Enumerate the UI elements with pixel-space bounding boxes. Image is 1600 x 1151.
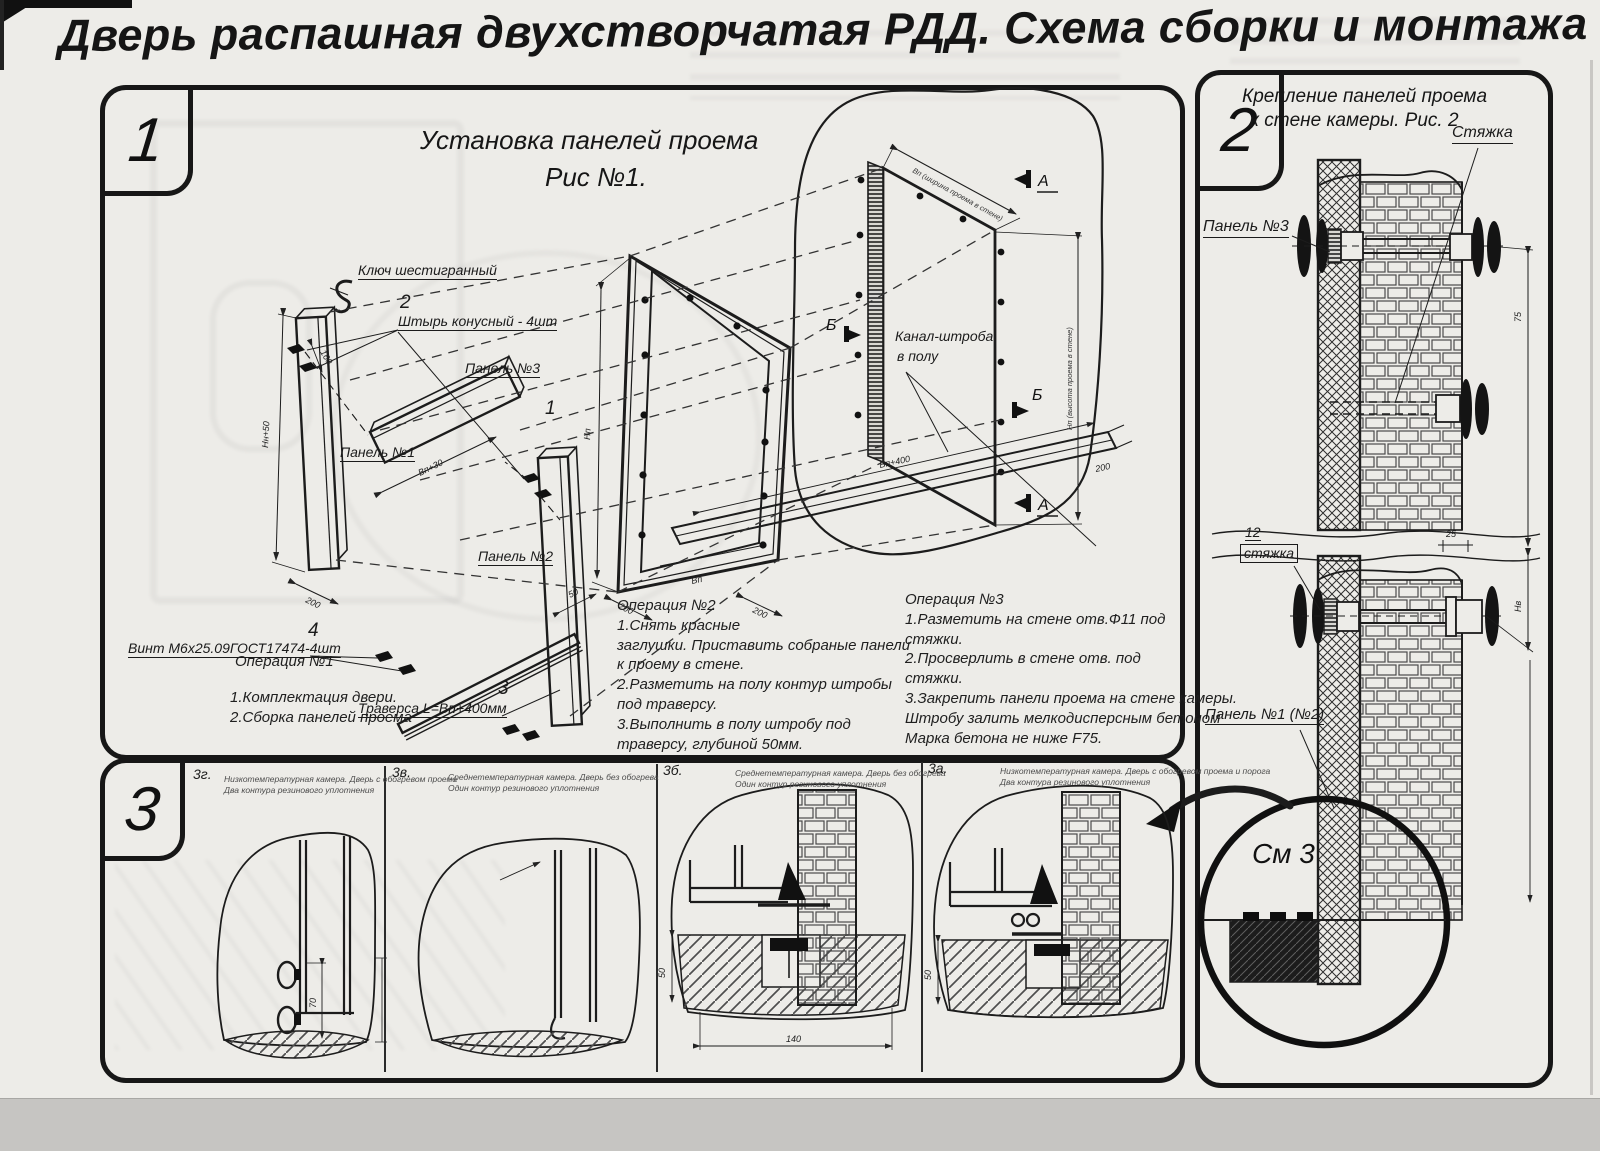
scan-artifact-left-edge <box>0 0 4 70</box>
detail-3a-caption: Низкотемпературная камера. Дверь с обогр… <box>1000 766 1270 788</box>
drawing-sheet: Дверь распашная двухстворчатая РДД. Схем… <box>0 0 1600 1151</box>
operation3-line: Штробу залить мелкодисперсным бетоном <box>905 709 1237 729</box>
channel-label-line2: в полу <box>897 348 938 364</box>
operation1-title: Операция №1 <box>235 652 334 672</box>
caption-line: Один контур резинового уплотнения <box>448 783 659 794</box>
channel-label-line1: Канал-штроба <box>895 328 993 344</box>
section3-divider <box>921 762 923 1072</box>
tie-small-label: стяжка <box>1240 544 1298 563</box>
caption-line: Два контура резинового уплотнения <box>1000 777 1270 788</box>
section1-badge-cell: 1 <box>104 89 193 196</box>
detail-3g-caption: Низкотемпературная камера. Дверь с обогр… <box>224 774 457 796</box>
operation2-line: 2.Разметить на полу контур штробы <box>617 675 910 695</box>
scan-bottom-band <box>0 1098 1600 1151</box>
caption-line: Один контур резинового уплотнения <box>735 779 946 790</box>
scan-page-edge <box>1590 60 1593 1095</box>
caption-line: Два контура резинового уплотнения <box>224 785 457 796</box>
sheet-title: Дверь распашная двухстворчатая РДД. Схем… <box>58 0 1578 62</box>
detail-3v-label: 3в. <box>392 764 411 780</box>
operation2-line: 3.Выполнить в полу штробу под <box>617 715 910 735</box>
section3-badge-cell: 3 <box>104 762 185 861</box>
operation3-text: Операция №3 1.Разметить на стене отв.Ф11… <box>905 590 1237 748</box>
detail-3b-caption: Среднетемпературная камера. Дверь без об… <box>735 768 946 790</box>
operation3-line: Марка бетона не ниже F75. <box>905 729 1237 749</box>
caption-line: Низкотемпературная камера. Дверь с обогр… <box>224 774 457 785</box>
tie-callout-number: 12 <box>1245 524 1261 541</box>
scan-artifact-corner <box>0 0 38 24</box>
operation2-title: Операция №2 <box>617 596 910 616</box>
item1-callout-number: 1 <box>545 398 556 420</box>
operation2-text: Операция №2 1.Снять красные заглушки. Пр… <box>617 596 910 754</box>
operation3-title: Операция №3 <box>905 590 1237 610</box>
operation2-line: под траверсу. <box>617 695 910 715</box>
operation1-line: 1.Комплектация двери. <box>230 688 412 708</box>
section3-frame: 3 <box>100 758 1185 1083</box>
detail-3b-label: 3б. <box>663 762 683 778</box>
caption-line: Низкотемпературная камера. Дверь с обогр… <box>1000 766 1270 777</box>
traverse-callout-number: 3 <box>498 678 509 700</box>
operation3-line: стяжки. <box>905 630 1237 650</box>
section3-badge: 3 <box>121 774 163 845</box>
section3-divider <box>656 764 658 1072</box>
operation2-line: 1.Снять красные <box>617 616 910 636</box>
operation2-line: к проему в стене. <box>617 655 910 675</box>
tie-label: Стяжка <box>1452 124 1513 144</box>
screw-callout-number: 4 <box>308 620 319 642</box>
panel1-label: Панель №1 <box>340 444 415 462</box>
panel3-label: Панель №3 <box>465 360 540 378</box>
pin-label: Штырь конусный - 4шт <box>398 313 557 331</box>
panel12-label: Панель №1 (№2) <box>1205 706 1324 725</box>
operation3-line: 1.Разметить на стене отв.Ф11 под <box>905 610 1237 630</box>
section3-divider <box>384 766 386 1072</box>
hex-key-label: Ключ шестигранный <box>358 262 497 280</box>
detail-3v-caption: Среднетемпературная камера. Дверь без об… <box>448 772 659 794</box>
operation2-line: траверсу, глубиной 50мм. <box>617 735 910 755</box>
pin-callout-number: 2 <box>400 292 411 314</box>
section1-figure-no: Рис №1. <box>545 162 647 193</box>
see-detail-3-label: См 3 <box>1252 838 1315 870</box>
detail-3a-label: 3а. <box>928 760 947 776</box>
operation1-text: 1.Комплектация двери. 2.Сборка панелей п… <box>230 688 412 728</box>
caption-line: Среднетемпературная камера. Дверь без об… <box>735 768 946 779</box>
operation1-line: 2.Сборка панелей проема <box>230 708 412 728</box>
panel3-wall-label: Панель №3 <box>1203 218 1289 238</box>
section2-heading-line2: к стене камеры. Рис. 2 <box>1250 110 1459 132</box>
operation2-line: заглушки. Приставить собраные панели <box>617 636 910 656</box>
detail-3g-label: 3г. <box>193 766 212 782</box>
operation3-line: 2.Просверлить в стене отв. под <box>905 649 1237 669</box>
section1-badge: 1 <box>125 105 167 176</box>
panel2-label: Панель №2 <box>478 548 553 566</box>
section2-heading-line1: Крепление панелей проема <box>1242 86 1487 108</box>
section1-heading: Установка панелей проема <box>420 125 758 156</box>
operation3-line: стяжки. <box>905 669 1237 689</box>
caption-line: Среднетемпературная камера. Дверь без об… <box>448 772 659 783</box>
operation3-line: 3.Закрепить панели проема на стене камер… <box>905 689 1237 709</box>
